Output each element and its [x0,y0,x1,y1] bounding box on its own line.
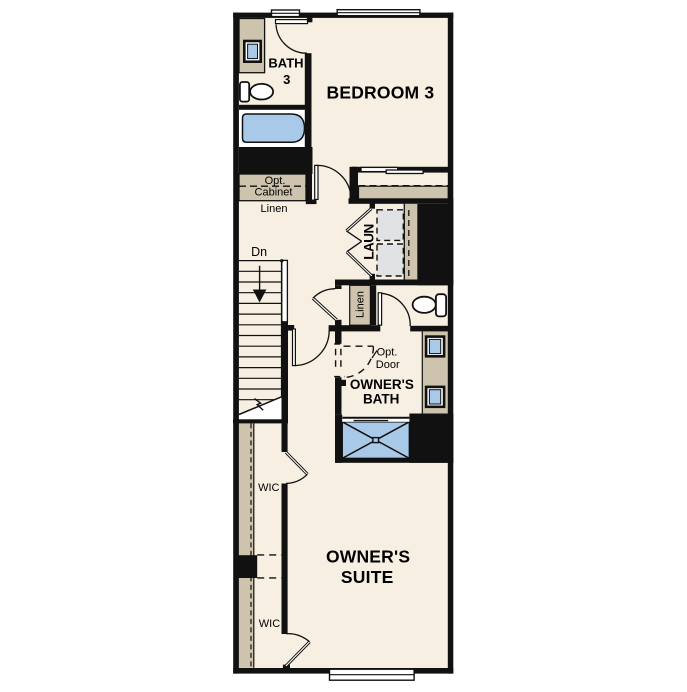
svg-text:Door: Door [376,359,400,371]
svg-text:Cabinet: Cabinet [255,187,293,199]
svg-text:BATH: BATH [363,392,400,407]
svg-text:WIC: WIC [258,482,279,494]
svg-text:Dn: Dn [251,245,267,259]
svg-text:BEDROOM 3: BEDROOM 3 [327,82,435,102]
svg-text:OWNER'S: OWNER'S [350,377,414,392]
svg-text:WIC: WIC [259,618,280,630]
svg-text:Linen: Linen [355,291,367,318]
svg-text:3: 3 [283,72,290,87]
svg-text:SUITE: SUITE [341,567,394,587]
svg-text:LAUN: LAUN [362,224,377,260]
svg-text:Linen: Linen [261,203,288,215]
svg-text:BATH: BATH [268,56,303,71]
svg-text:OWNER'S: OWNER'S [326,546,410,566]
svg-text:Opt.: Opt. [265,175,286,187]
svg-text:Opt.: Opt. [377,347,398,359]
